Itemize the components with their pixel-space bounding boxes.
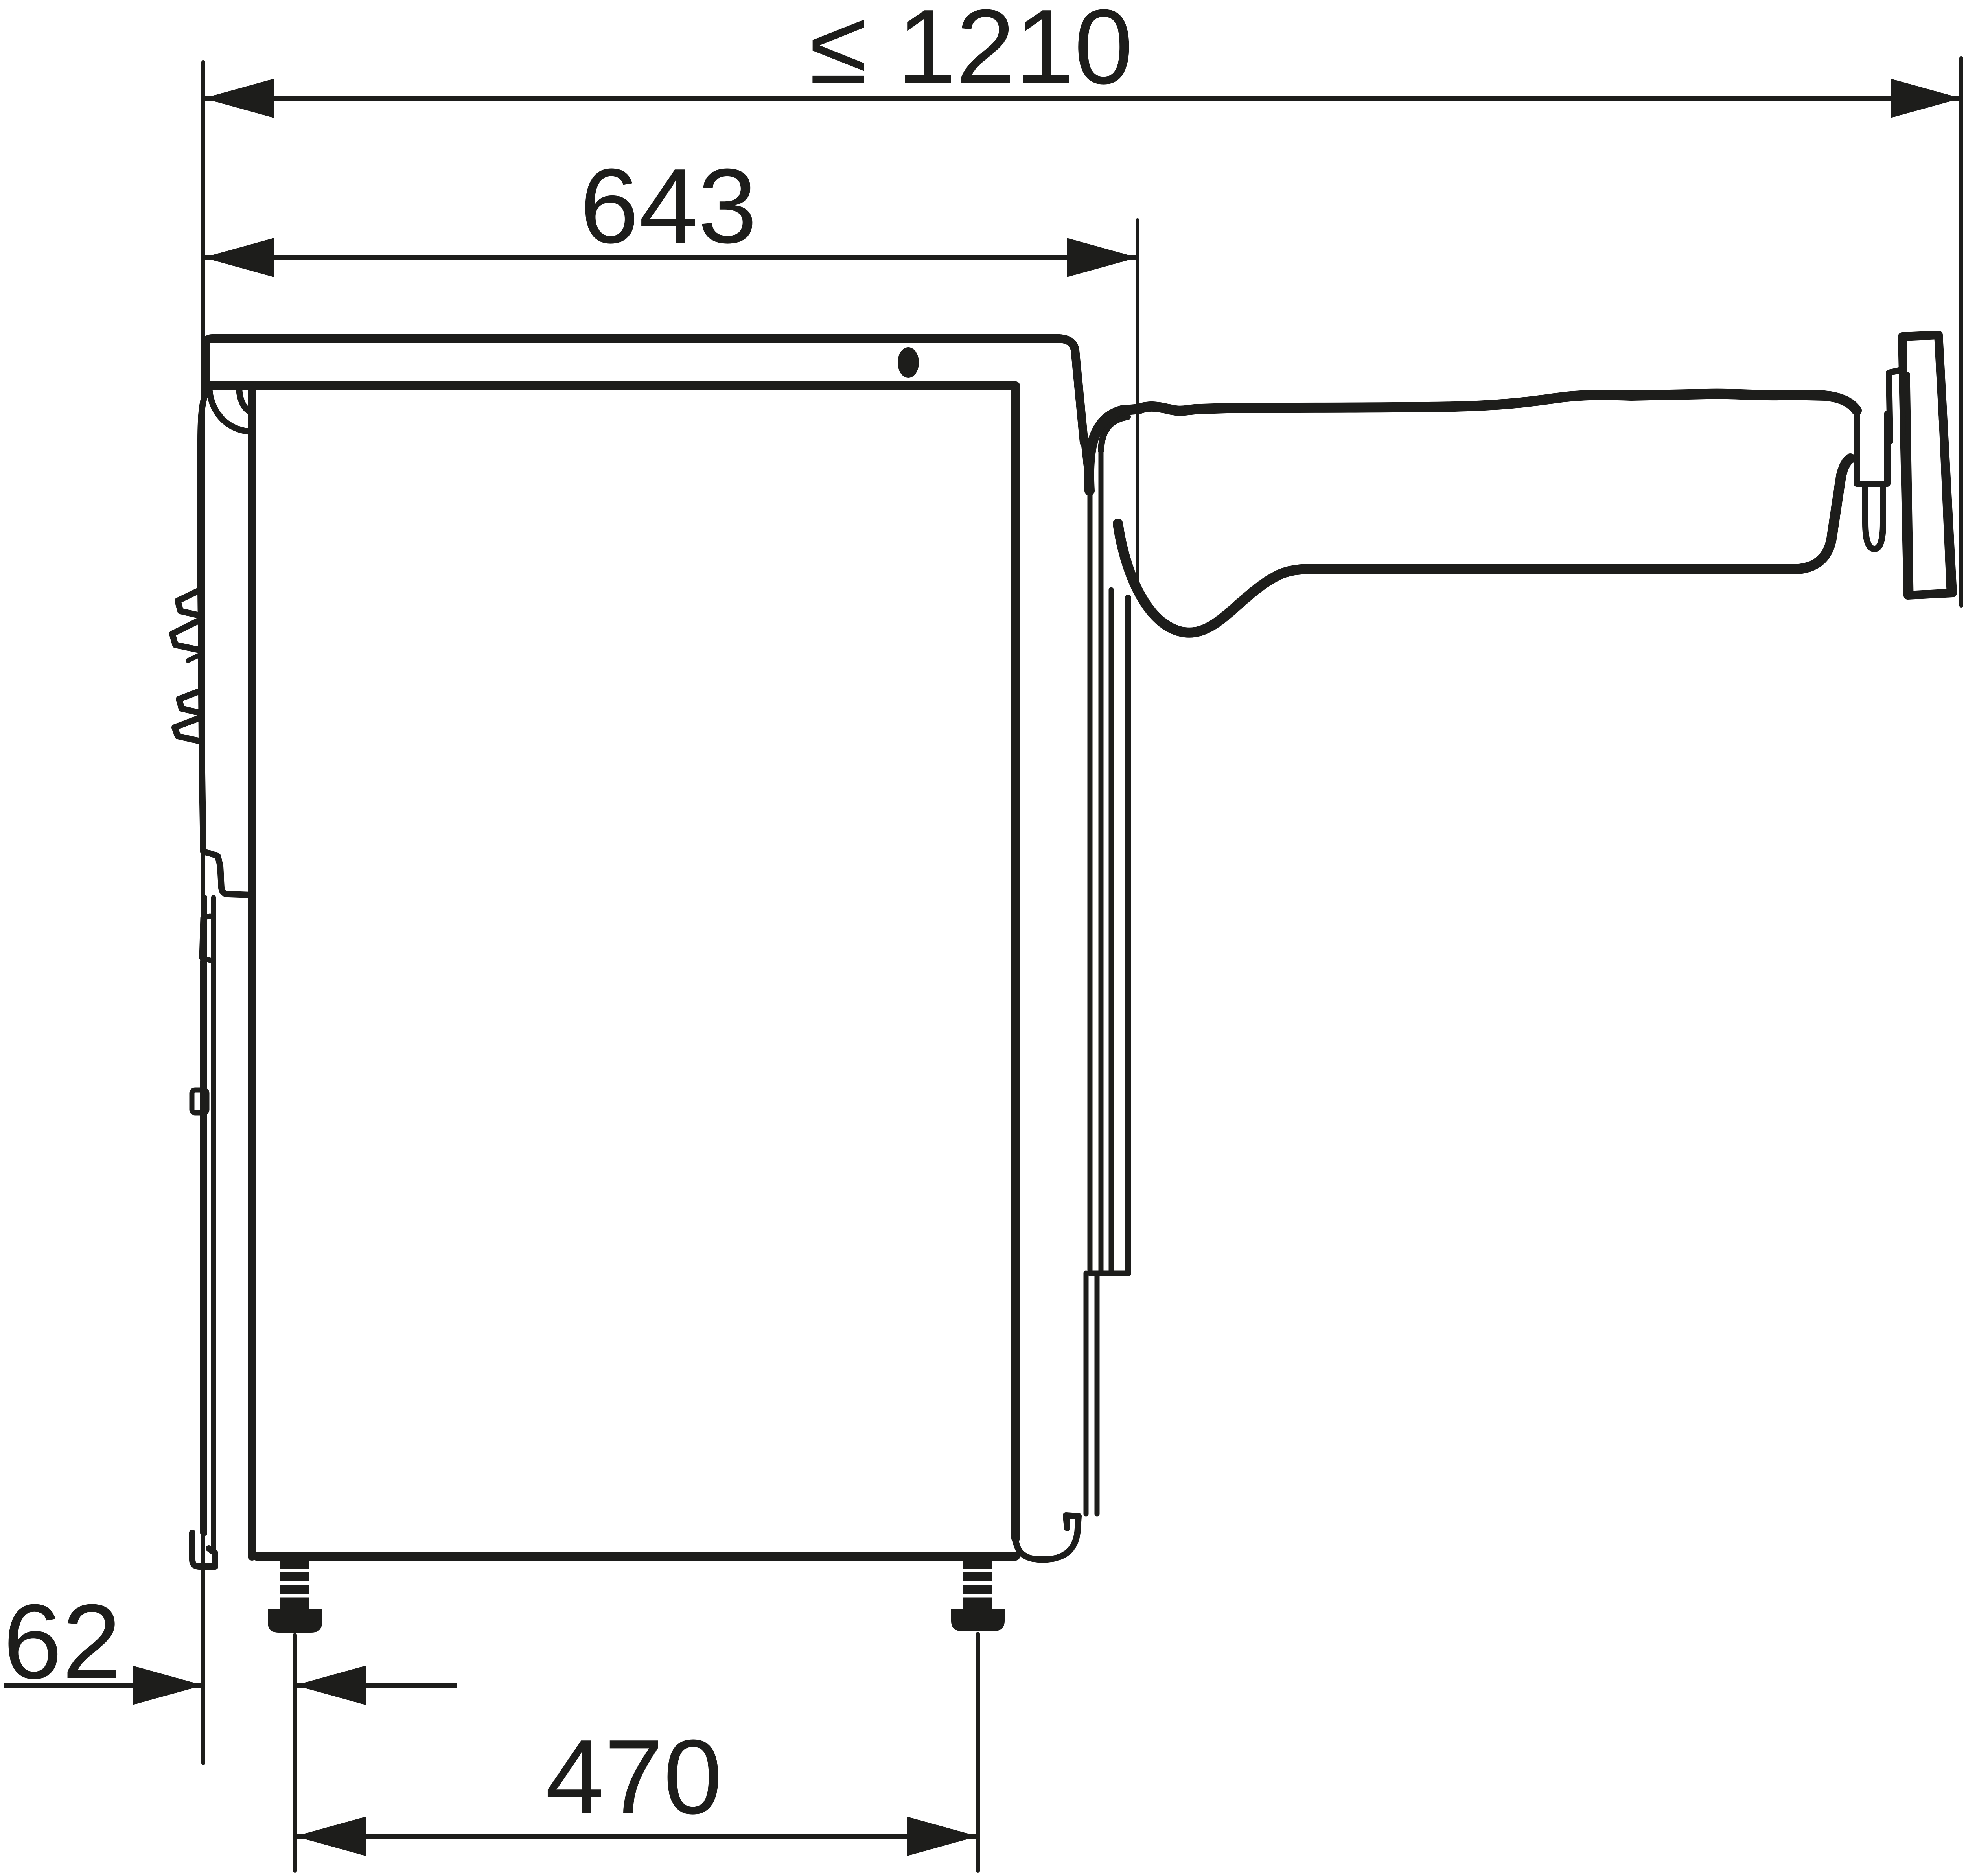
drain-hose [1089, 335, 1953, 633]
hose-end-fitting [1857, 411, 1887, 484]
rear-foot [951, 1556, 1005, 1631]
dimension-label-front-foot-setback: 62 [3, 1583, 121, 1701]
arrowhead-right [907, 1817, 978, 1856]
arrowhead-left [295, 1817, 366, 1856]
hinge-wedge [172, 620, 201, 650]
dimension-label-foot-spacing: 470 [545, 1718, 722, 1836]
worktop-marker-dot [898, 347, 919, 378]
machine-outline [172, 339, 1128, 1633]
diagram-page: ≤ 1210 643 62 470 [0, 0, 1966, 1876]
front-foot-base [268, 1609, 322, 1633]
rear-channel [1086, 417, 1128, 1514]
hinge-wedge [175, 717, 202, 742]
hinge-wedge [178, 590, 201, 616]
diagram-canvas: ≤ 1210 643 62 470 [0, 0, 1966, 1876]
arrowhead-right [1067, 238, 1138, 277]
hose-bottom-edge [1118, 458, 1850, 633]
worktop [206, 339, 1084, 442]
hinge-wedge [179, 690, 201, 713]
arrowhead-right [1891, 79, 1961, 118]
rear-bottom-hook [1016, 1515, 1079, 1559]
hose-holder-bracket [1889, 335, 1953, 595]
door-bottom-edge [203, 852, 252, 895]
front-foot [268, 1556, 322, 1633]
dimension-overall-depth: ≤ 1210 [203, 0, 1961, 118]
hose-end-hook [1865, 484, 1883, 549]
dimension-label-overall-depth: ≤ 1210 [809, 0, 1133, 106]
door-hinge-details [172, 590, 202, 742]
bracket-inner-line [1907, 374, 1911, 594]
dimension-front-foot-setback: 62 [3, 1583, 457, 1705]
arrowhead-left [203, 238, 274, 277]
arrowhead-right-pointing [133, 1666, 203, 1705]
arrowhead-left-pointing [295, 1666, 366, 1705]
dimension-label-machine-depth: 643 [580, 147, 757, 265]
dimension-machine-depth: 643 [203, 147, 1138, 277]
arrowhead-left [203, 79, 274, 118]
dimension-foot-spacing: 470 [295, 1718, 978, 1856]
hose-top-edge [1089, 394, 1857, 491]
rear-foot-base [951, 1609, 1005, 1631]
